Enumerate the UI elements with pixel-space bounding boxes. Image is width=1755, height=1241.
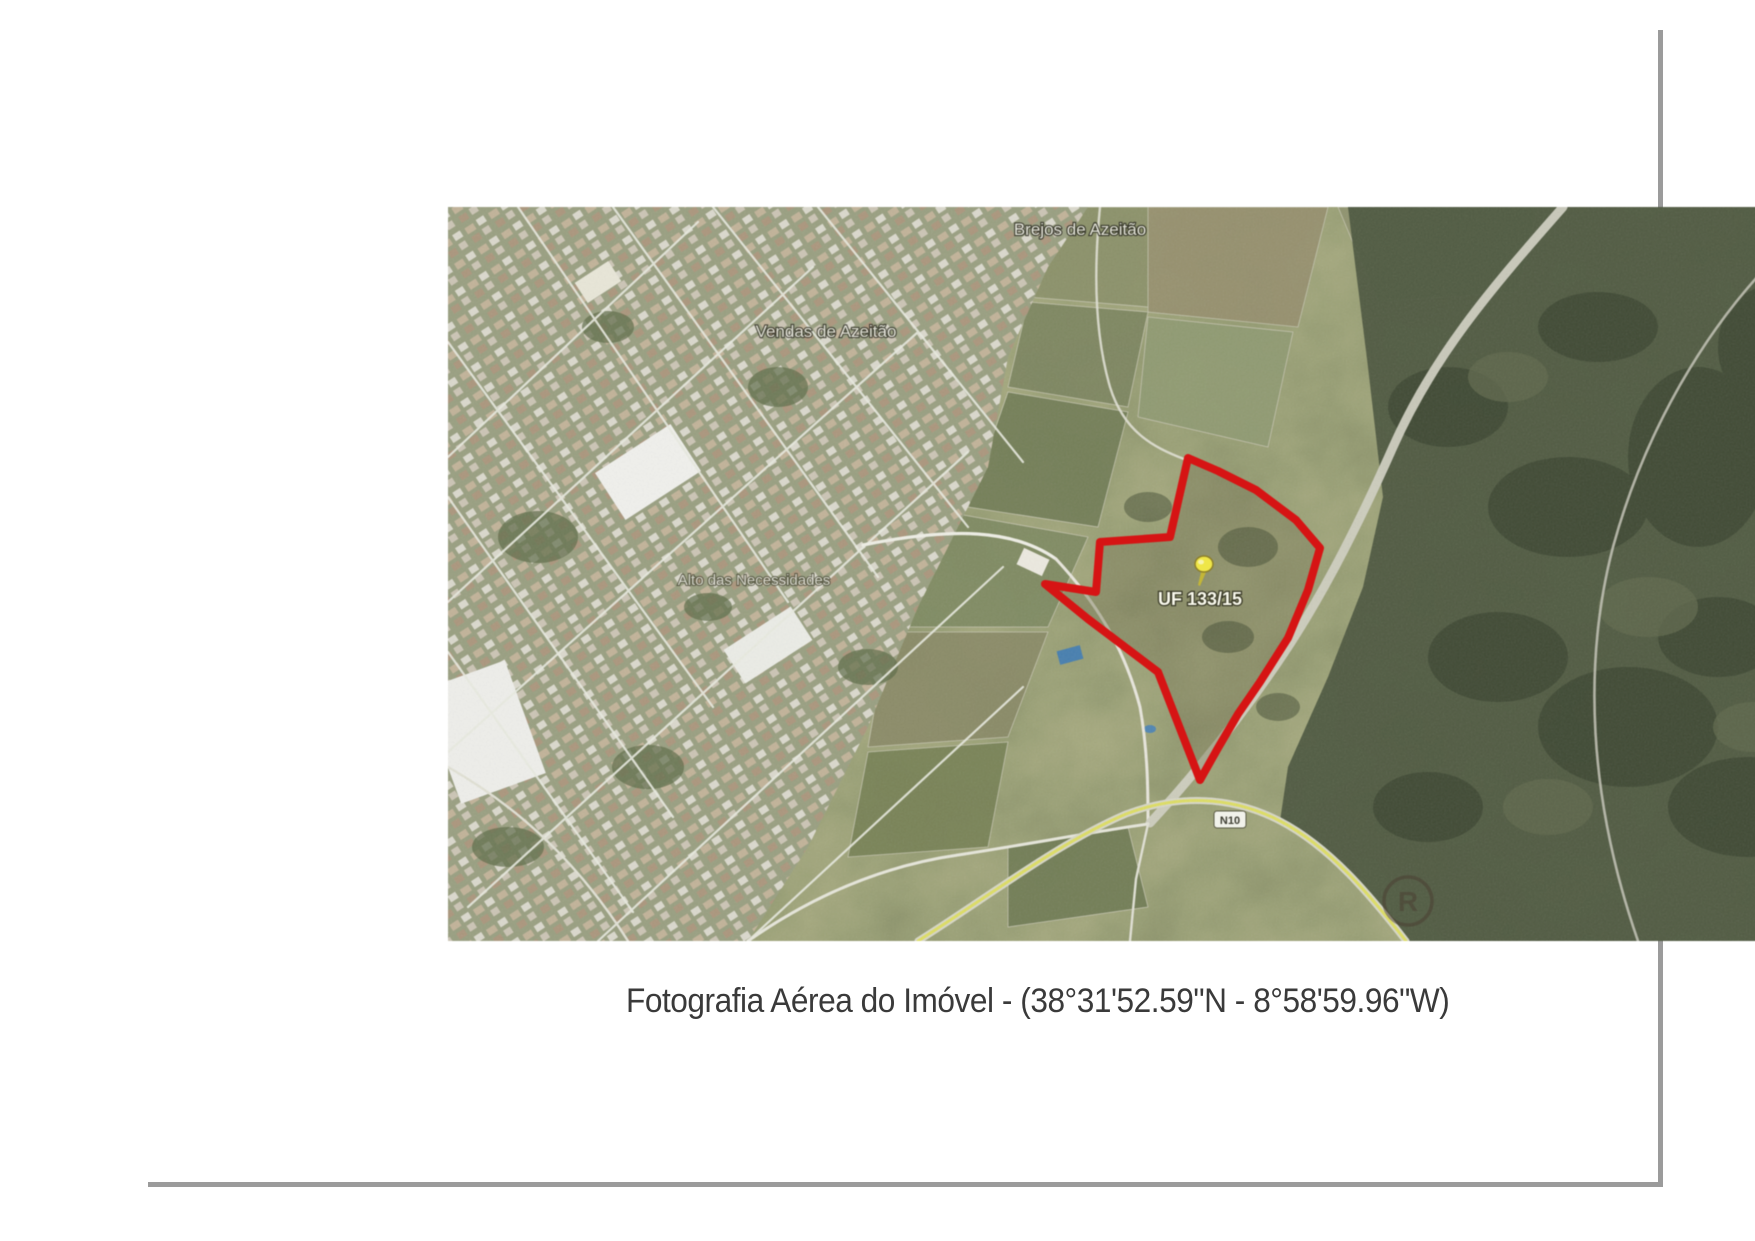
satellite-map: Brejos de Azeitão Vendas de Azeitão Alto… — [448, 207, 1755, 941]
document-canvas: Brejos de Azeitão Vendas de Azeitão Alto… — [0, 0, 1755, 1241]
road-badge-text: N10 — [1220, 815, 1240, 827]
aerial-photo: Brejos de Azeitão Vendas de Azeitão Alto… — [448, 207, 1755, 941]
document-page: Brejos de Azeitão Vendas de Azeitão Alto… — [148, 30, 1663, 1187]
place-label-center: Alto das Necessidades — [678, 572, 831, 589]
photo-caption: Fotografia Aérea do Imóvel - (38°31'52.5… — [626, 982, 1449, 1021]
place-label-top: Brejos de Azeitão — [1014, 220, 1146, 239]
parcel-label: UF 133/15 — [1158, 589, 1242, 609]
caption-row: Fotografia Aérea do Imóvel - (38°31'52.5… — [388, 982, 1688, 1021]
grain-overlay — [448, 207, 1755, 941]
watermark-letter: R — [1398, 886, 1418, 917]
road-badge: N10 — [1214, 811, 1246, 828]
place-label-west: Vendas de Azeitão — [756, 322, 897, 341]
